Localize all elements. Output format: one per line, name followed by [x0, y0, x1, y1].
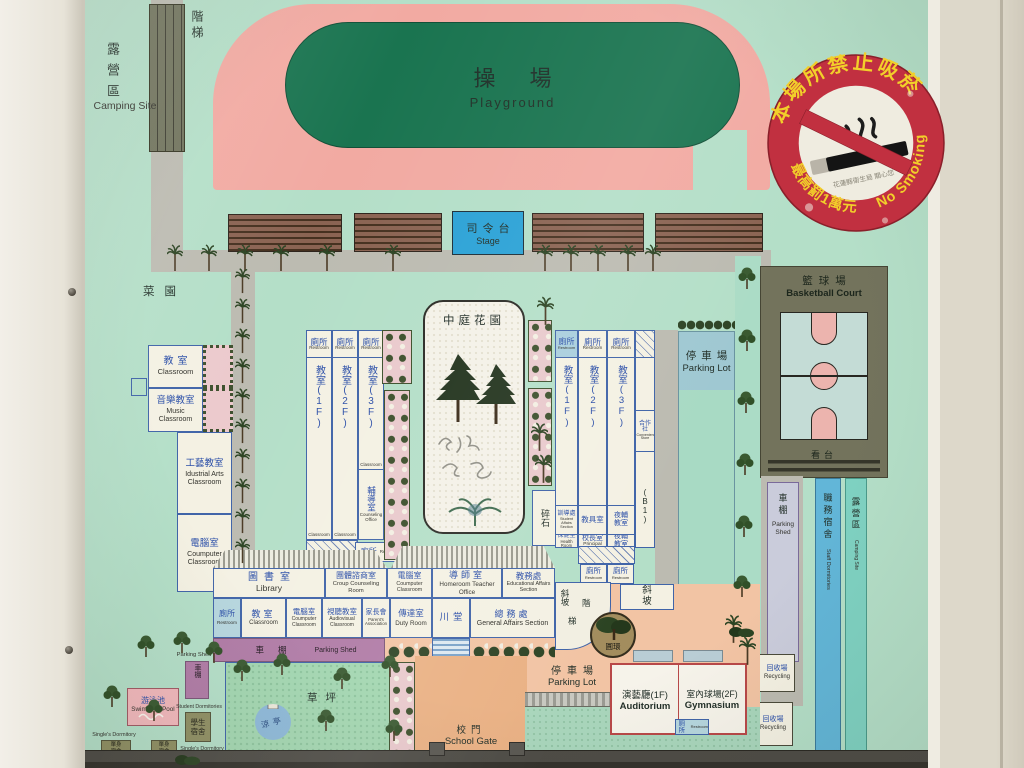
gate-zh: 校門 — [415, 722, 527, 736]
screw-icon — [65, 646, 73, 654]
camping-east-en: Camping Site — [853, 540, 859, 570]
east-wing-3f: 廁所 Restroom 教室(3F) 夜輔教室 夜輔教室 — [607, 330, 635, 548]
coop-store: 合作社 Convenience Store — [636, 410, 654, 452]
basketball-grandstand-rows — [768, 460, 880, 473]
pavilion: 涼亭 — [255, 704, 291, 740]
stage-en: Stage — [476, 236, 500, 246]
roundabout: 圓環 — [590, 612, 636, 658]
walkway-east-campus — [655, 330, 678, 592]
wall-left — [0, 0, 85, 768]
basketball-title-zh: 籃球場 — [767, 273, 887, 288]
flower-hedge — [528, 388, 552, 486]
gate-post — [509, 742, 525, 756]
court-half-line — [781, 375, 867, 377]
pavilion-house-icon — [265, 704, 281, 709]
ramp-east: 斜坡 — [620, 584, 674, 610]
lawn-label: 草坪 — [307, 690, 344, 705]
west-wing-1f: 廁所 Restroom 教室(1F) Classroom — [306, 330, 332, 540]
classroom-3f-cell: 教室(3F) — [608, 358, 634, 505]
teaching-aids-room: 教具室 — [579, 505, 606, 534]
classroom-2f-cell: 教室(2F) — [579, 358, 606, 505]
planter — [203, 345, 233, 388]
audiovisual-classroom: 視聽教室 Audiovisual Classroom — [322, 598, 362, 638]
recycling-area: 回收場 Recycling — [759, 654, 795, 692]
restroom-cell: 廁所 Restroom — [307, 331, 331, 358]
basketball-title-en: Basketball Court — [761, 288, 887, 299]
east-wing-2f: 廁所 Restroom 教室(2F) 教具室 校長室 Principal — [578, 330, 607, 548]
parking-shed-small-en: Parking Shed — [171, 652, 217, 658]
courtyard-title: 中庭花園 — [425, 312, 523, 328]
staff-dorm-zh: 職務宿舍 — [822, 493, 835, 541]
parking-bottom-en: Parking Lot — [528, 677, 616, 688]
water-wave-icon — [138, 713, 168, 720]
duty-room: 傳達室 Duty Room — [390, 598, 432, 638]
student-dorm-en: Student Dormitories — [171, 704, 227, 710]
staff-dormitories: 職務宿舍 Staff Dormitories — [815, 478, 841, 768]
ramp-label-v: 斜坡 — [559, 589, 571, 606]
parking-shed-east-zh: 車棚 — [777, 493, 790, 517]
library: 圖書室 Library — [213, 568, 325, 598]
auditorium-zh: 演藝廳(1F) — [622, 687, 668, 701]
music-classroom: 音樂教室 Music Classroom — [148, 388, 203, 432]
auditorium-en: Auditorium — [620, 701, 671, 712]
camping-site-left-en: Camping Site — [85, 100, 165, 112]
parking-shed-small-zh: 車棚 — [192, 664, 202, 678]
group-counseling-room: 團體諮商室 Croup Counseling Room — [325, 568, 387, 598]
bleacher — [655, 213, 763, 252]
pavilion-label: 涼亭 — [255, 713, 291, 732]
restroom-cell: 廁所 Restroom — [579, 331, 606, 358]
night-class-room: 夜輔教室 — [608, 505, 634, 534]
parking-shed-east-en: Parking Shed — [770, 521, 796, 537]
parking-shed-south-zh: 車棚 — [255, 644, 300, 656]
camping-site-left-zh: 露營區 — [103, 42, 122, 105]
basketball-court — [780, 312, 868, 440]
gym-en: Gymnasium — [685, 700, 739, 711]
walkway-west-campus — [231, 250, 255, 568]
court-key-bottom — [811, 407, 837, 440]
staff-dorm-en: Staff Dormitories — [825, 549, 831, 590]
flower-hedge — [382, 330, 412, 384]
parking-shed-south-en: Parking Shed — [314, 647, 356, 654]
courtyard-garden: 中庭花園 — [423, 300, 525, 534]
stairs-block — [149, 4, 185, 152]
classroom-west: 教室 Classroom — [148, 345, 203, 388]
stairs-label: 階梯 — [189, 10, 206, 42]
parking-bottom-label: 停車場 Parking Lot — [528, 662, 616, 688]
restroom-south: 廁所 Restroom — [213, 598, 241, 638]
screw-icon — [68, 288, 76, 296]
photo-of-campus-map: 操場 Playground 階梯 露營區 Camping Site 司令台 St… — [0, 0, 1024, 768]
west-wing-2f: 廁所 Restroom 教室(2F) Classroom — [332, 330, 358, 540]
playground-field: 操場 Playground — [285, 22, 740, 148]
wall-right — [928, 0, 1024, 768]
parents-association: 家長會 Parent's Association — [362, 598, 390, 638]
building-roof — [391, 546, 555, 568]
roof-hatch — [636, 331, 654, 358]
camping-site-east: 露營區 Camping Site — [845, 478, 867, 768]
vegetable-garden-label: 菜園 — [143, 283, 186, 299]
flower-hedge — [528, 320, 552, 382]
flower-hedge — [384, 390, 410, 560]
annex-block — [683, 650, 723, 662]
playground-title-en: Playground — [470, 95, 556, 110]
classroom-1f-cell: 教室(1F) — [556, 358, 577, 505]
computer-classroom-south-2: 電腦室 Coumputer Classroom — [286, 598, 322, 638]
planter — [203, 388, 233, 432]
parking-shed-small: 車棚 — [185, 661, 209, 699]
restroom-cell: 廁所 Restroom — [333, 331, 357, 358]
shrub-icon — [447, 494, 503, 528]
parking-shed-east: 車棚 Parking Shed — [767, 482, 799, 662]
computer-classroom-south-1: 電腦室 Coumputer Classroom — [387, 568, 432, 598]
restroom-cell: 廁所 Restroom — [607, 564, 634, 584]
basement-level: (B1) — [636, 452, 654, 547]
east-wing-annex: 合作社 Convenience Store (B1) — [635, 330, 655, 548]
bleacher — [354, 213, 442, 252]
classroom-3f-cell: 教室(3F) Classroom — [359, 358, 383, 469]
gate-post — [429, 742, 445, 756]
restroom-cell: 廁所 Restroom — [359, 331, 383, 358]
student-dorm-zh: 學生宿舍 — [190, 718, 207, 736]
restroom-cell: 廁所 Restroom — [580, 564, 607, 584]
tree-icon — [137, 634, 155, 658]
west-wing-3f: 廁所 Restroom 教室(3F) Classroom 輔導室 Counsel… — [358, 330, 384, 540]
industrial-arts-classroom: 工藝教室 Idustrial Arts Classroom — [177, 432, 232, 514]
stair-label-1: 階 — [582, 597, 591, 609]
playground-title-zh: 操場 — [473, 61, 585, 93]
restroom-cell: 廁所 Restroom — [608, 331, 634, 358]
restroom-cell: 廁所 Restroom — [556, 331, 577, 358]
parking-lot-mid-en: Parking Lot — [682, 363, 730, 374]
camping-east-zh: 露營區 — [850, 497, 862, 532]
pool-zh: 游泳池 — [141, 695, 165, 706]
parking-bottom-zh: 停車場 — [534, 662, 616, 677]
student-dormitories: 學生宿舍 — [185, 712, 211, 742]
educational-affairs-section: 教務處 Educational Affairs Section — [502, 568, 555, 598]
roof-hatch — [578, 546, 635, 564]
court-key-top — [811, 312, 837, 345]
road-curb — [85, 762, 928, 768]
tree-icon — [173, 630, 191, 654]
auditorium: 演藝廳(1F) Auditorium — [612, 665, 679, 733]
counseling-office: 輔導室 Counseling Office — [359, 469, 383, 539]
parking-stripes — [525, 692, 610, 707]
restroom-auditorium: 廁所 Restroom — [675, 719, 709, 735]
parking-lot-mid: 停車場 Parking Lot — [678, 331, 735, 589]
classroom-south: 教室 Classroom — [241, 598, 286, 638]
pool-en: Swimming Pool — [131, 706, 174, 713]
wall-seam — [1000, 0, 1003, 768]
parking-lot-hedge — [678, 318, 735, 331]
hall: 川堂 — [432, 598, 470, 638]
handwriting-scribble — [433, 430, 519, 486]
roundabout-label: 圓環 — [592, 641, 634, 652]
bleacher — [532, 213, 644, 252]
classroom-2f-cell: 教室(2F) Classroom — [333, 358, 357, 539]
no-smoking-sticker: 本場所禁止吸菸 最高罰1萬元 No Smoking 花蓮縣衛生局 關心您 — [749, 36, 962, 249]
health-room: 保健室 Health Room — [556, 534, 577, 547]
general-affairs-section: 總務處 General Affairs Section — [470, 598, 555, 638]
singles-dorm-en: Single's Dormitory — [85, 732, 143, 738]
building-roof — [213, 550, 387, 568]
stage-zh: 司令台 — [467, 220, 515, 236]
pine-trees-icon — [428, 334, 524, 426]
parking-lot-mid-zh: 停車場 — [686, 348, 733, 363]
east-wing-1f: 廁所 Restroom 教室(1F) 訓導處 Student Affairs S… — [555, 330, 578, 548]
small-structure — [131, 378, 147, 396]
parking-shed-south: 車棚 Parking Shed — [213, 638, 385, 662]
roundabout-tree-icon — [594, 615, 634, 641]
student-affairs-section: 訓導處 Student Affairs Section — [556, 505, 577, 534]
stair-label-2: 梯 — [568, 615, 577, 627]
homeroom-teacher-office: 導師室 Homeroom Teacher Office — [432, 568, 502, 598]
classroom-1f-cell: 教室(1F) Classroom — [307, 358, 331, 539]
tree-icon — [103, 684, 121, 708]
bleacher — [228, 214, 342, 252]
gym-zh: 室內球場(2F) — [686, 687, 737, 700]
stage: 司令台 Stage — [452, 211, 524, 255]
annex-block — [633, 650, 673, 662]
